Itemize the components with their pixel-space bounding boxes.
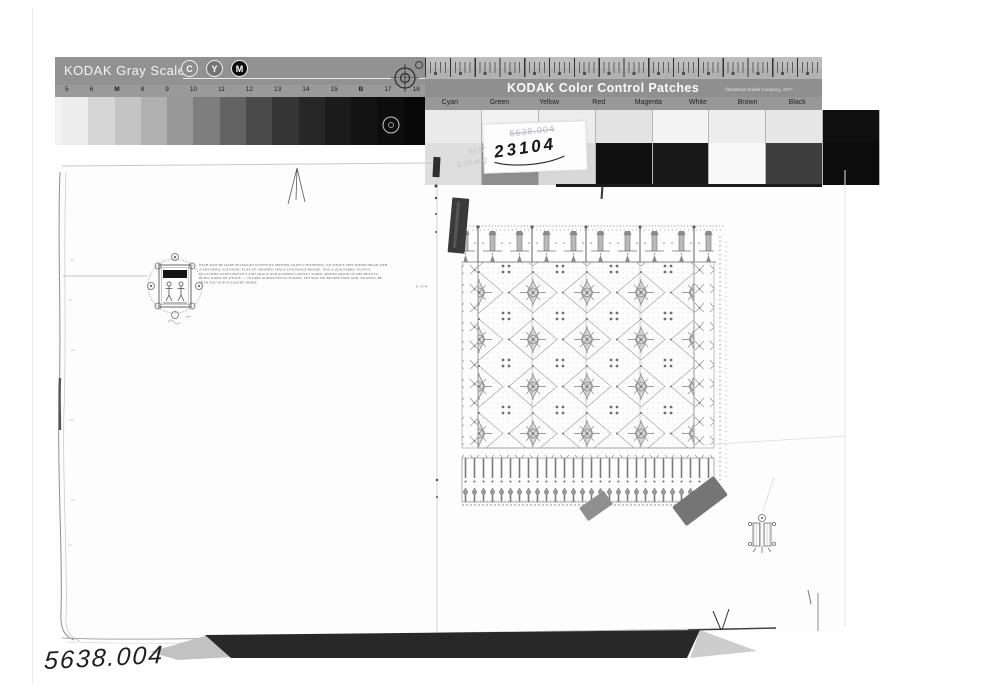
small-stamp-icon (748, 515, 775, 554)
pencil-scribbles (168, 316, 191, 324)
page-lineart-overlay (0, 0, 1000, 694)
book-cradle-shadow (150, 590, 818, 660)
left-page-deckle-edge (59, 172, 80, 641)
thread-mark-icon (288, 168, 305, 204)
archival-photo: KODAK Gray Scale CYM 56M89101112131415B1… (0, 0, 1000, 694)
dark-tape (448, 197, 470, 253)
stamp-scratch-line (763, 477, 774, 511)
large-tape (672, 476, 728, 526)
printers-ornament-icon (148, 254, 203, 319)
small-tape (579, 491, 613, 521)
gutter-thread-marks (432, 157, 440, 498)
